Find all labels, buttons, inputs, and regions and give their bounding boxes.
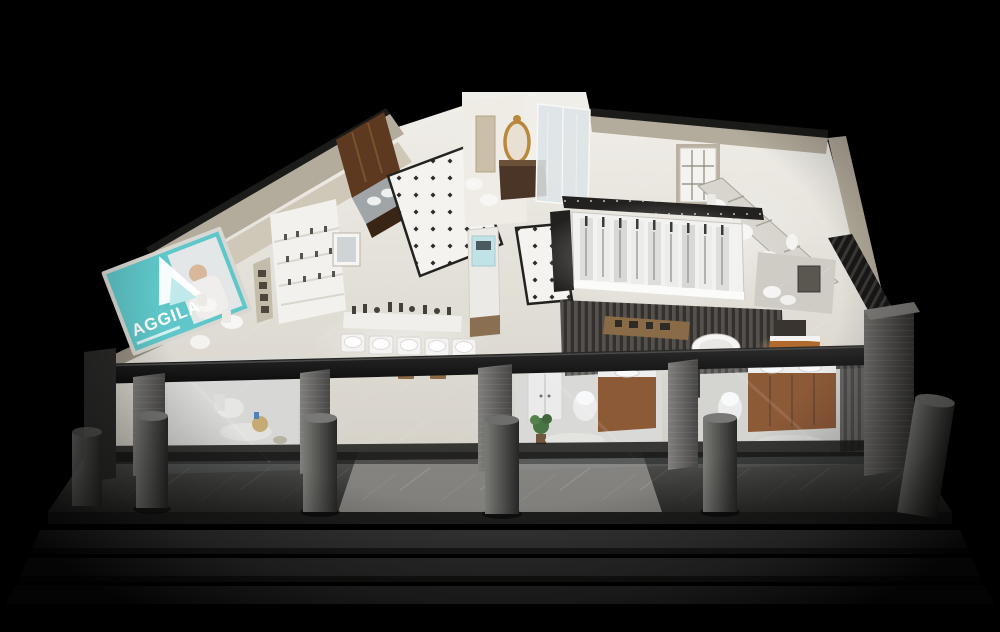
showroom-render: AGGILA (0, 0, 1000, 632)
render-canvas: AGGILA (0, 0, 1000, 632)
vignette-overlay (0, 0, 1000, 632)
